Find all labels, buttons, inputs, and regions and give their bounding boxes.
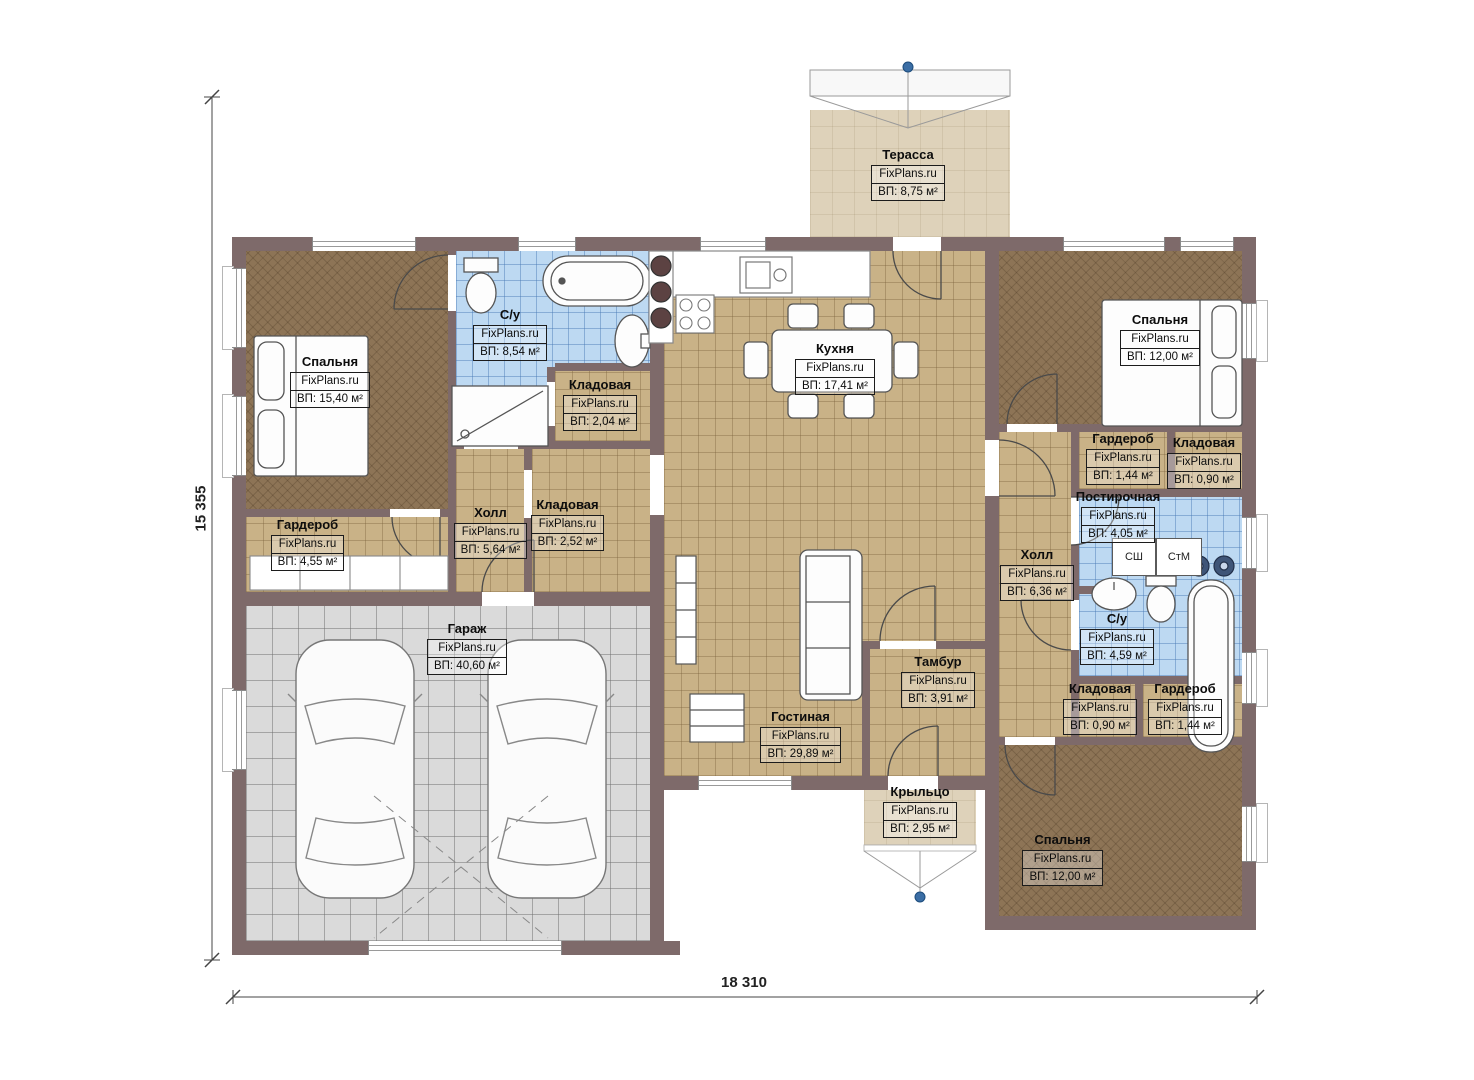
room-label-terrace: Терасса FixPlans.ru ВП: 8,75 м² xyxy=(848,148,968,201)
room-area: ВП: 8,75 м² xyxy=(872,184,944,201)
anchor-dot xyxy=(903,62,913,72)
room-name: Кладовая xyxy=(550,378,650,393)
room-area: ВП: 40,60 м² xyxy=(428,658,506,675)
room-info-box: FixPlans.ru ВП: 2,52 м² xyxy=(531,515,605,551)
window-left-bedroom-2 xyxy=(232,396,246,476)
window-sill xyxy=(1256,649,1268,707)
room-name: Спальня xyxy=(1105,313,1215,328)
width-dimension-label: 18 310 xyxy=(684,974,804,991)
room-label-laundry: Постирочная FixPlans.ru ВП: 4,05 м² xyxy=(1072,490,1164,543)
room-label-storage-2-52: Кладовая FixPlans.ru ВП: 2,52 м² xyxy=(520,498,615,551)
room-area: ВП: 0,90 м² xyxy=(1168,472,1240,489)
room-area: ВП: 5,64 м² xyxy=(455,542,527,559)
room-name: Спальня xyxy=(1010,833,1115,848)
room-name: С/у xyxy=(1072,612,1162,627)
brand-text: FixPlans.ru xyxy=(761,728,839,746)
room-label-storage-right-bottom: Кладовая FixPlans.ru ВП: 0,90 м² xyxy=(1062,682,1138,735)
brand-text: FixPlans.ru xyxy=(1082,508,1154,526)
room-name: Кухня xyxy=(780,342,890,357)
room-name: Постирочная xyxy=(1072,490,1164,505)
room-info-box: FixPlans.ru ВП: 17,41 м² xyxy=(795,359,875,395)
room-area: ВП: 12,00 м² xyxy=(1023,869,1101,886)
brand-text: FixPlans.ru xyxy=(455,524,527,542)
wall-right-wing-bottom xyxy=(985,916,1256,930)
window-right-bedroom-bottom xyxy=(1242,806,1256,862)
room-area: ВП: 12,00 м² xyxy=(1121,349,1199,366)
room-area: ВП: 1,44 м² xyxy=(1087,468,1159,485)
door-opening-bedroom-top-right xyxy=(1007,424,1057,432)
room-label-wardrobe-left: Гардероб FixPlans.ru ВП: 4,55 м² xyxy=(255,518,360,571)
wall-divider-center-right xyxy=(985,237,999,930)
brand-text: FixPlans.ru xyxy=(1081,630,1153,648)
room-info-box: FixPlans.ru ВП: 40,60 м² xyxy=(427,639,507,675)
room-label-storage-right-top: Кладовая FixPlans.ru ВП: 0,90 м² xyxy=(1163,436,1245,489)
window-left-bedroom-1 xyxy=(232,268,246,348)
room-area: ВП: 17,41 м² xyxy=(796,378,874,395)
room-label-storage-2-04: Кладовая FixPlans.ru ВП: 2,04 м² xyxy=(550,378,650,431)
room-name: Кладовая xyxy=(520,498,615,513)
room-info-box: FixPlans.ru ВП: 2,04 м² xyxy=(563,395,637,431)
brand-text: FixPlans.ru xyxy=(291,373,369,391)
room-info-box: FixPlans.ru ВП: 8,54 м² xyxy=(473,325,547,361)
room-name: Холл xyxy=(1000,548,1074,563)
room-label-tambour: Тамбур FixPlans.ru ВП: 3,91 м² xyxy=(893,655,983,708)
anchor-dot xyxy=(915,892,925,902)
room-name: Гардероб xyxy=(1078,432,1168,447)
window-sill xyxy=(1256,300,1268,362)
door-opening-bedroom-bottom-right xyxy=(1005,737,1055,745)
room-label-kitchen: Кухня FixPlans.ru ВП: 17,41 м² xyxy=(780,342,890,395)
window-sill xyxy=(1256,514,1268,572)
brand-text: FixPlans.ru xyxy=(796,360,874,378)
wall-laundry-bath-stub xyxy=(1079,586,1109,594)
window-right-bath xyxy=(1242,652,1256,704)
brand-text: FixPlans.ru xyxy=(884,803,956,821)
room-label-bedroom-left: Спальня FixPlans.ru ВП: 15,40 м² xyxy=(270,355,390,408)
floor-bedroom-bottom-right xyxy=(999,745,1242,916)
wall-tambour-left xyxy=(862,649,870,776)
room-area: ВП: 3,91 м² xyxy=(902,691,974,708)
room-label-bathroom-right: С/у FixPlans.ru ВП: 4,59 м² xyxy=(1072,612,1162,665)
brand-text: FixPlans.ru xyxy=(1168,454,1240,472)
room-area: ВП: 6,36 м² xyxy=(1001,584,1073,601)
room-info-box: FixPlans.ru ВП: 12,00 м² xyxy=(1022,850,1102,886)
room-info-box: FixPlans.ru ВП: 1,44 м² xyxy=(1086,449,1160,485)
garage-gate xyxy=(368,941,562,955)
door-opening-terrace xyxy=(893,237,941,251)
brand-text: FixPlans.ru xyxy=(1001,566,1073,584)
room-area: ВП: 15,40 м² xyxy=(291,391,369,408)
brand-text: FixPlans.ru xyxy=(1087,450,1159,468)
door-opening-bathroom-left xyxy=(464,441,518,449)
brand-text: FixPlans.ru xyxy=(1121,331,1199,349)
room-label-bedroom-bottom-right: Спальня FixPlans.ru ВП: 12,00 м² xyxy=(1010,833,1115,886)
room-info-box: FixPlans.ru ВП: 4,59 м² xyxy=(1080,629,1154,665)
brand-text: FixPlans.ru xyxy=(272,536,344,554)
room-area: ВП: 4,59 м² xyxy=(1081,648,1153,665)
room-label-garage: Гараж FixPlans.ru ВП: 40,60 м² xyxy=(412,622,522,675)
room-name: С/у xyxy=(455,308,565,323)
room-name: Спальня xyxy=(270,355,390,370)
room-name: Гардероб xyxy=(1143,682,1227,697)
room-area: ВП: 1,44 м² xyxy=(1149,718,1221,735)
room-name: Кладовая xyxy=(1062,682,1138,697)
door-opening-garage-hall xyxy=(482,592,534,606)
room-area: ВП: 29,89 м² xyxy=(761,746,839,763)
door-opening-bedroom-left xyxy=(448,255,456,311)
door-opening-tambour xyxy=(880,641,936,649)
window-top-bedroom-left xyxy=(312,237,416,251)
room-label-bedroom-top-right: Спальня FixPlans.ru ВП: 12,00 м² xyxy=(1105,313,1215,366)
wall-storage204-top xyxy=(555,363,650,371)
brand-text: FixPlans.ru xyxy=(1064,700,1136,718)
wall-garage-top xyxy=(246,592,650,606)
door-opening-hall-left xyxy=(650,455,664,515)
room-name: Тамбур xyxy=(893,655,983,670)
room-name: Кладовая xyxy=(1163,436,1245,451)
brand-text: FixPlans.ru xyxy=(428,640,506,658)
window-top-kitchen xyxy=(700,237,766,251)
room-name: Гараж xyxy=(412,622,522,637)
room-label-wardrobe-right-top: Гардероб FixPlans.ru ВП: 1,44 м² xyxy=(1078,432,1168,485)
room-label-living: Гостиная FixPlans.ru ВП: 29,89 м² xyxy=(748,710,853,763)
floor-plan: 15 355 18 310 xyxy=(0,0,1474,1080)
window-left-garage xyxy=(232,690,246,770)
brand-text: FixPlans.ru xyxy=(474,326,546,344)
room-area: ВП: 4,55 м² xyxy=(272,554,344,571)
bottom-dimension-line xyxy=(226,990,1264,1004)
room-info-box: FixPlans.ru ВП: 1,44 м² xyxy=(1148,699,1222,735)
room-info-box: FixPlans.ru ВП: 29,89 м² xyxy=(760,727,840,763)
window-top-bedroom-right xyxy=(1063,237,1165,251)
room-info-box: FixPlans.ru ВП: 0,90 м² xyxy=(1063,699,1137,735)
brand-text: FixPlans.ru xyxy=(902,673,974,691)
room-name: Гардероб xyxy=(255,518,360,533)
wall-garage-right xyxy=(650,790,664,955)
window-living-bottom xyxy=(698,776,792,790)
room-info-box: FixPlans.ru ВП: 4,55 м² xyxy=(271,535,345,571)
room-label-wardrobe-right-bottom: Гардероб FixPlans.ru ВП: 1,44 м² xyxy=(1143,682,1227,735)
window-top-bedroom-right-2 xyxy=(1180,237,1234,251)
room-area: ВП: 4,05 м² xyxy=(1082,526,1154,543)
room-info-box: FixPlans.ru ВП: 4,05 м² xyxy=(1081,507,1155,543)
brand-text: FixPlans.ru xyxy=(1023,851,1101,869)
room-name: Крыльцо xyxy=(874,785,966,800)
door-opening-right-hall xyxy=(985,440,999,496)
room-area: ВП: 2,52 м² xyxy=(532,534,604,551)
washer-tag: СтМ xyxy=(1156,538,1202,576)
room-name: Терасса xyxy=(848,148,968,163)
room-name: Гостиная xyxy=(748,710,853,725)
room-info-box: FixPlans.ru ВП: 2,95 м² xyxy=(883,802,957,838)
brand-text: FixPlans.ru xyxy=(532,516,604,534)
room-label-porch: Крыльцо FixPlans.ru ВП: 2,95 м² xyxy=(874,785,966,838)
room-info-box: FixPlans.ru ВП: 15,40 м² xyxy=(290,372,370,408)
window-top-bathroom xyxy=(518,237,576,251)
room-label-bathroom-left: С/у FixPlans.ru ВП: 8,54 м² xyxy=(455,308,565,361)
room-info-box: FixPlans.ru ВП: 6,36 м² xyxy=(1000,565,1074,601)
brand-text: FixPlans.ru xyxy=(872,166,944,184)
room-info-box: FixPlans.ru ВП: 3,91 м² xyxy=(901,672,975,708)
room-label-hall-right: Холл FixPlans.ru ВП: 6,36 м² xyxy=(1000,548,1074,601)
window-right-bedroom-top xyxy=(1242,303,1256,359)
room-info-box: FixPlans.ru ВП: 8,75 м² xyxy=(871,165,945,201)
window-sill xyxy=(1256,803,1268,863)
room-info-box: FixPlans.ru ВП: 0,90 м² xyxy=(1167,453,1241,489)
dryer-tag: СШ xyxy=(1112,538,1156,576)
room-area: ВП: 0,90 м² xyxy=(1064,718,1136,735)
room-info-box: FixPlans.ru ВП: 5,64 м² xyxy=(454,523,528,559)
brand-text: FixPlans.ru xyxy=(564,396,636,414)
height-dimension-label: 15 355 xyxy=(193,464,210,554)
room-area: ВП: 8,54 м² xyxy=(474,344,546,361)
porch-gable xyxy=(864,845,976,902)
room-area: ВП: 2,95 м² xyxy=(884,821,956,838)
window-right-laundry xyxy=(1242,517,1256,569)
brand-text: FixPlans.ru xyxy=(1149,700,1221,718)
door-opening-wardrobe-left xyxy=(390,509,440,517)
room-info-box: FixPlans.ru ВП: 12,00 м² xyxy=(1120,330,1200,366)
room-area: ВП: 2,04 м² xyxy=(564,414,636,431)
